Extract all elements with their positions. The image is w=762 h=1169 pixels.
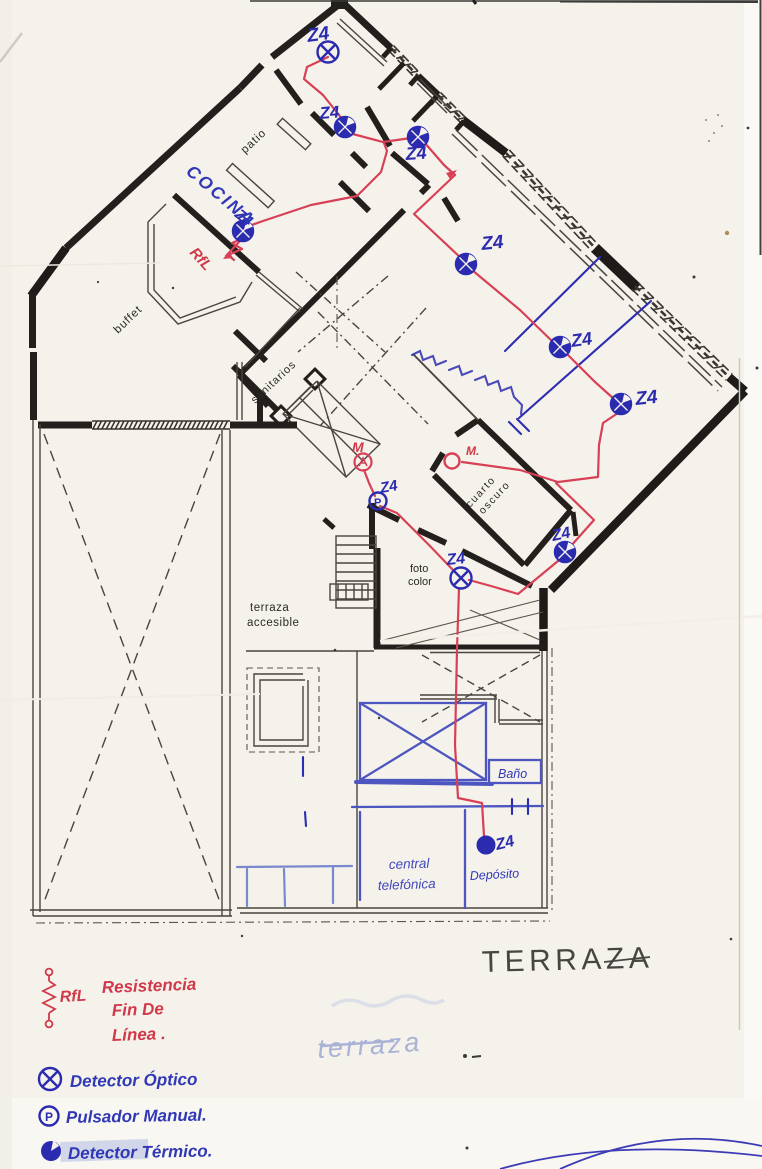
svg-text:foto: foto: [410, 563, 428, 575]
svg-text:accesible: accesible: [247, 617, 299, 629]
svg-text:Z4: Z4: [378, 477, 400, 497]
svg-text:Resistencia: Resistencia: [101, 975, 196, 997]
svg-text:P: P: [374, 497, 381, 509]
svg-text:Depósito: Depósito: [469, 866, 519, 883]
svg-text:Z4: Z4: [569, 328, 594, 351]
svg-text:Baño: Baño: [498, 767, 527, 781]
svg-text:Detector Óptico: Detector Óptico: [70, 1070, 198, 1091]
svg-text:M: M: [352, 439, 364, 455]
svg-text:Detector Térmico.: Detector Térmico.: [68, 1141, 213, 1163]
svg-text:Fin De: Fin De: [111, 999, 164, 1020]
svg-text:Z4: Z4: [445, 550, 466, 569]
svg-text:Z4: Z4: [305, 23, 331, 47]
svg-text:P: P: [45, 1110, 53, 1124]
svg-text:color: color: [408, 576, 432, 588]
svg-text:telefónica: telefónica: [378, 876, 437, 893]
svg-text:M.: M.: [466, 444, 479, 458]
svg-text:central: central: [389, 856, 431, 872]
svg-text:Z4: Z4: [479, 232, 505, 255]
svg-text:RfL: RfL: [59, 988, 87, 1006]
svg-text:Z4: Z4: [404, 143, 427, 164]
svg-text:terraza: terraza: [250, 602, 289, 614]
svg-text:Z4: Z4: [318, 102, 341, 123]
svg-text:Pulsador Manual.: Pulsador Manual.: [66, 1106, 207, 1127]
svg-text:Línea .: Línea .: [111, 1024, 165, 1045]
svg-text:Z4: Z4: [633, 387, 659, 410]
